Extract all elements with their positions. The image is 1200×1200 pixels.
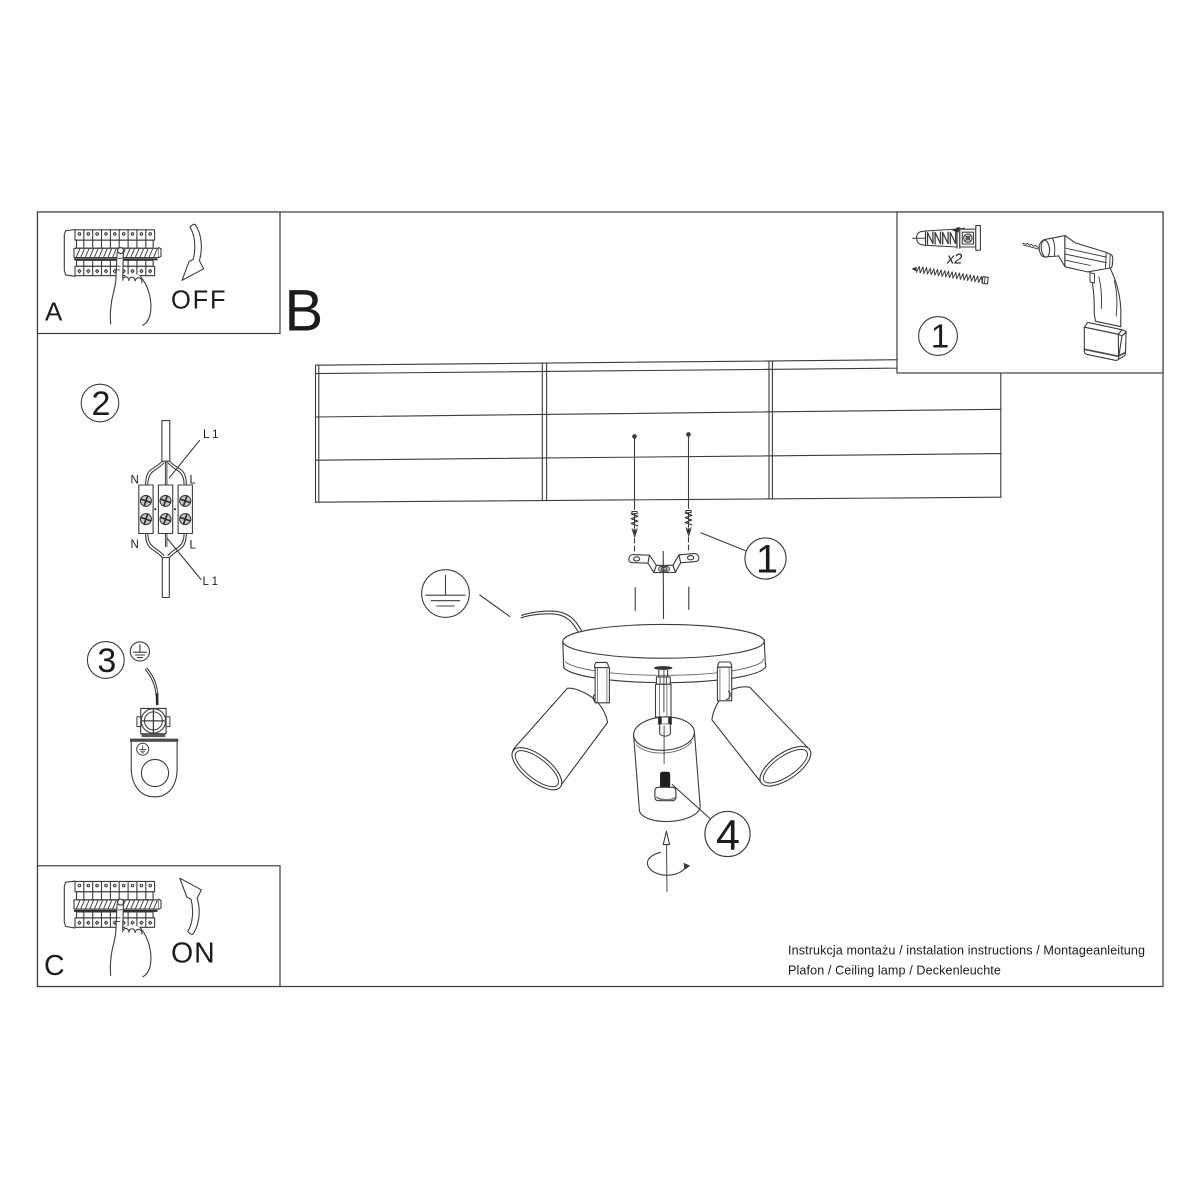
svg-text:L 1: L 1: [203, 576, 219, 588]
svg-text:1: 1: [756, 538, 778, 582]
svg-text:B: B: [285, 279, 324, 344]
svg-text:N: N: [131, 539, 139, 551]
svg-text:L: L: [190, 540, 197, 552]
svg-text:Instrukcja montażu / instalati: Instrukcja montażu / instalation instruc…: [788, 944, 1145, 958]
svg-text:3: 3: [97, 642, 116, 680]
svg-text:x2: x2: [946, 252, 962, 268]
svg-text:N: N: [131, 475, 139, 487]
svg-text:C: C: [44, 950, 65, 982]
svg-text:ON: ON: [171, 938, 216, 970]
svg-text:Plafon / Ceiling lamp / Decken: Plafon / Ceiling lamp / Deckenleuchte: [788, 964, 1001, 978]
svg-text:A: A: [45, 297, 63, 327]
svg-text:L: L: [190, 475, 197, 487]
svg-text:4: 4: [716, 812, 740, 860]
svg-text:1: 1: [931, 318, 949, 355]
svg-text:2: 2: [92, 385, 111, 423]
svg-text:L 1: L 1: [203, 429, 219, 441]
svg-text:OFF: OFF: [171, 287, 227, 315]
